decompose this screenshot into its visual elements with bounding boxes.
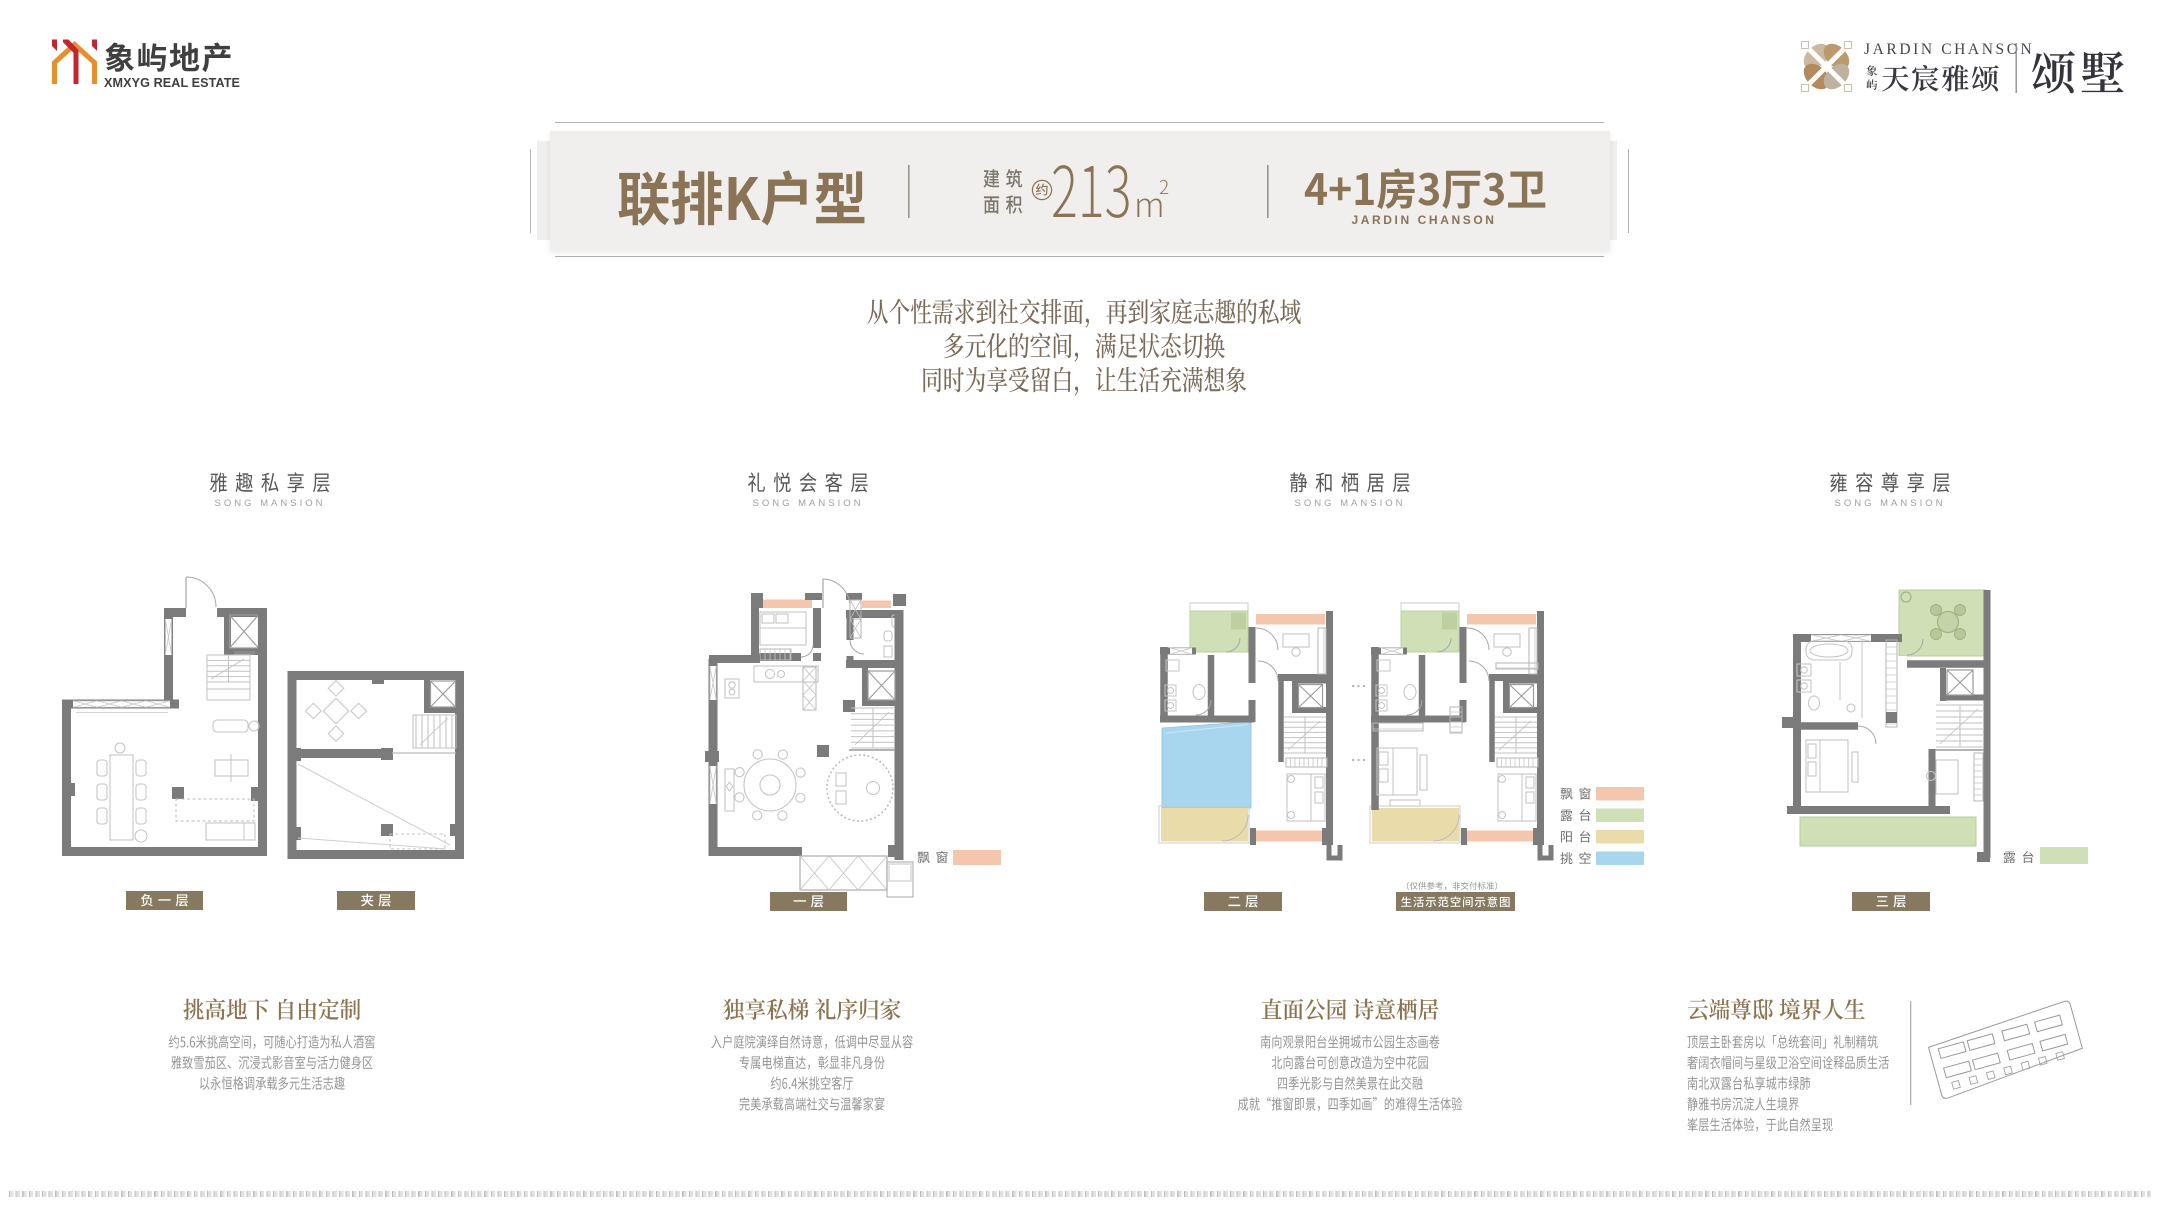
svg-text:JARDIN CHANSON: JARDIN CHANSON	[1864, 41, 2034, 58]
svg-text:XMXYG REAL ESTATE: XMXYG REAL ESTATE	[104, 76, 240, 90]
svg-text:SONG MANSION: SONG MANSION	[1295, 498, 1406, 509]
svg-text:SONG MANSION: SONG MANSION	[1835, 498, 1946, 509]
svg-text:SONG MANSION: SONG MANSION	[753, 498, 864, 509]
svg-text:SONG MANSION: SONG MANSION	[215, 498, 326, 509]
svg-text:JARDIN CHANSON: JARDIN CHANSON	[1351, 213, 1496, 227]
